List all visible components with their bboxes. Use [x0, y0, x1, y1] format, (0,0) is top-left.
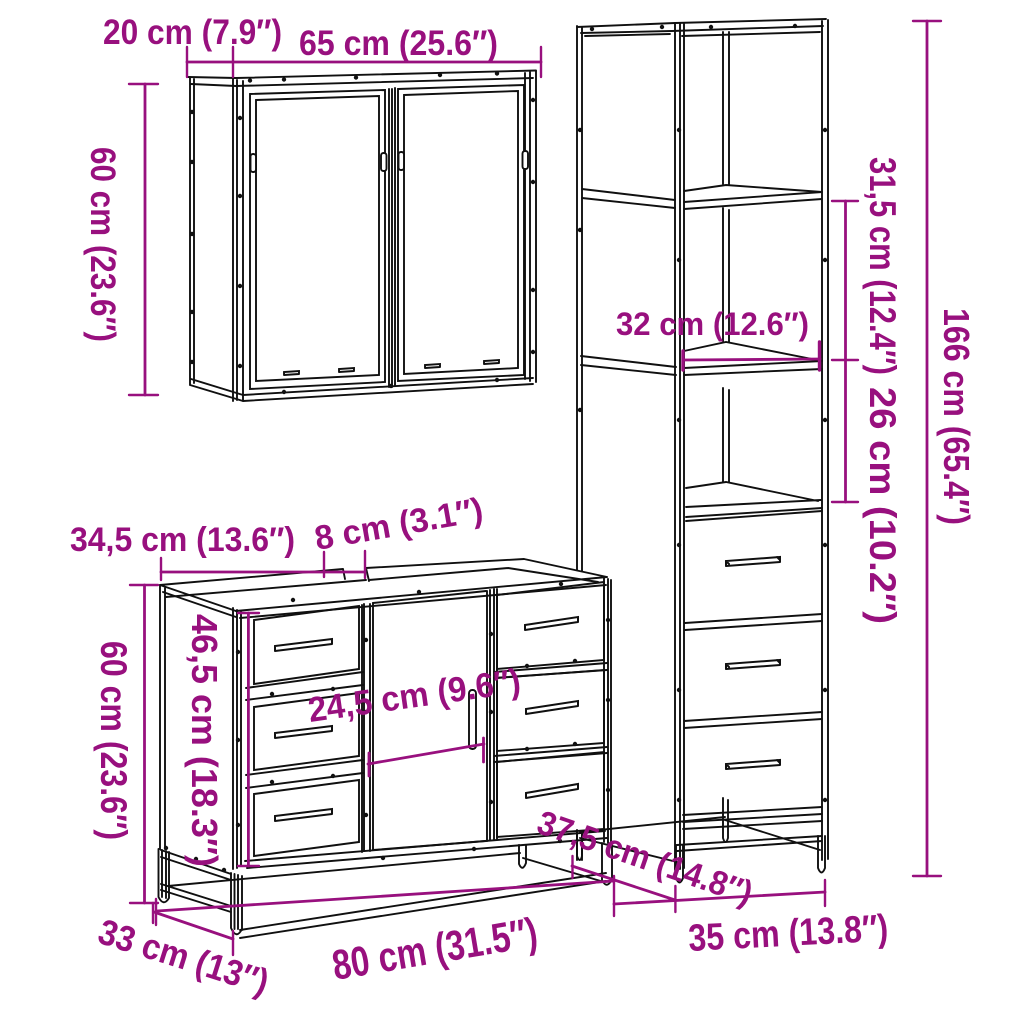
svg-text:8 cm (3.1″): 8 cm (3.1″) [312, 491, 486, 558]
svg-text:46,5 cm (18.3″): 46,5 cm (18.3″) [184, 614, 225, 867]
svg-text:60 cm (23.6″): 60 cm (23.6″) [83, 147, 122, 342]
svg-text:35 cm (13.8″): 35 cm (13.8″) [687, 908, 889, 960]
svg-text:20 cm (7.9″): 20 cm (7.9″) [103, 13, 282, 52]
svg-text:80 cm (31.5″): 80 cm (31.5″) [329, 908, 541, 989]
svg-text:34,5 cm (13.6″): 34,5 cm (13.6″) [70, 521, 295, 559]
svg-text:166 cm (65.4″): 166 cm (65.4″) [936, 308, 977, 525]
svg-text:33 cm (13″): 33 cm (13″) [94, 911, 274, 1003]
svg-text:32 cm (12.6″): 32 cm (12.6″) [616, 306, 809, 342]
svg-text:31,5 cm (12.4″): 31,5 cm (12.4″) [862, 157, 903, 375]
svg-text:65 cm (25.6″): 65 cm (25.6″) [299, 24, 498, 63]
svg-text:26 cm (10.2″): 26 cm (10.2″) [862, 387, 903, 624]
svg-text:60 cm (23.6″): 60 cm (23.6″) [93, 641, 134, 840]
